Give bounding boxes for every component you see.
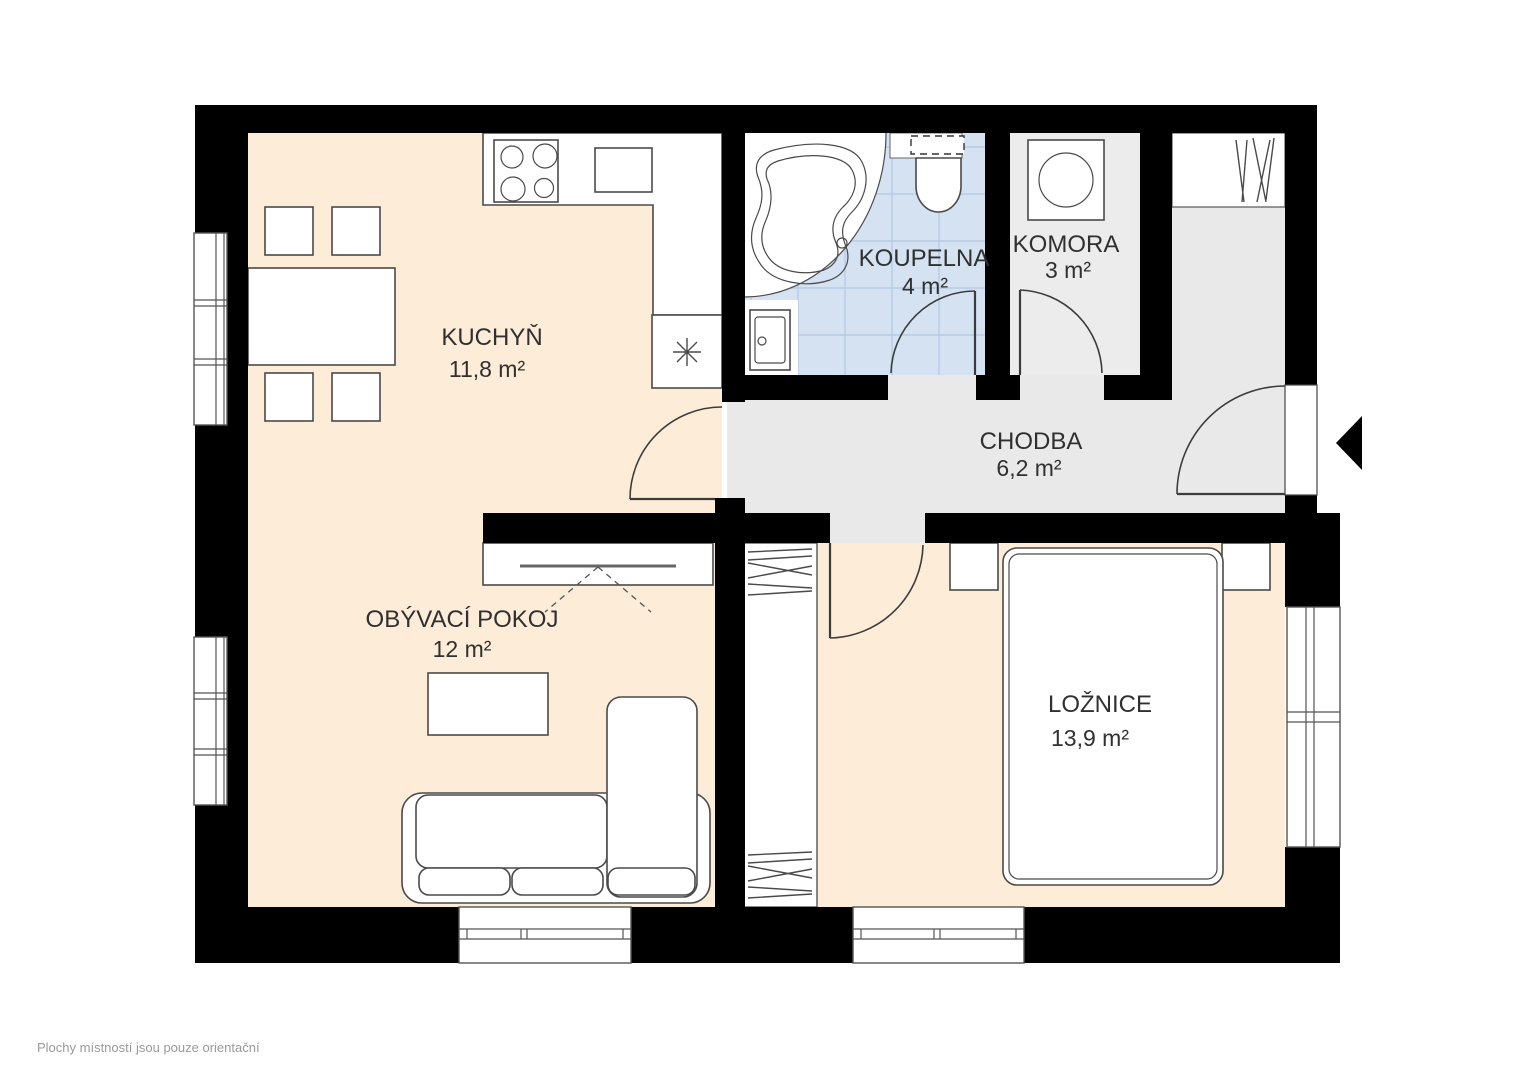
chair (265, 207, 313, 255)
fridge (652, 315, 722, 388)
label-bathroom-area: 4 m² (902, 273, 948, 299)
washing-machine (1028, 140, 1104, 220)
toilet-bowl (916, 158, 961, 212)
label-living-room-area: 12 m² (433, 636, 492, 662)
label-hallway-area: 6,2 m² (996, 455, 1062, 481)
kitchen-sink (595, 148, 652, 192)
window-bedroom-bottom (853, 907, 1024, 963)
coffee-table (428, 673, 548, 735)
stove (494, 140, 558, 202)
chair (332, 207, 380, 255)
label-kitchen: KUCHYŇ (441, 324, 542, 351)
disclaimer-note: Plochy místností jsou pouze orientační (37, 1040, 260, 1055)
chair (265, 373, 313, 421)
nightstand (950, 543, 998, 590)
window-living-left (194, 637, 227, 805)
floor-plan-page: KUCHYŇ 11,8 m² KOUPELNA 4 m² KOMORA 3 m²… (0, 0, 1528, 1080)
entrance-arrow-icon (1336, 416, 1362, 470)
bathroom-sink (750, 310, 790, 370)
sofa-chaise (607, 697, 697, 897)
label-bathroom: KOUPELNA (859, 245, 990, 272)
label-bedroom: LOŽNICE (1048, 691, 1152, 718)
sofa-seat-cushion (512, 868, 603, 895)
label-storage-area: 3 m² (1045, 257, 1091, 283)
fridge-star-icon (673, 338, 701, 366)
sofa-seat-cushion (419, 868, 510, 895)
label-kitchen-area: 11,8 m² (449, 356, 526, 382)
window-kitchen-left (194, 233, 227, 425)
window-living-bottom (459, 907, 631, 963)
label-living-room: OBÝVACÍ POKOJ (366, 606, 559, 633)
chair (332, 373, 380, 421)
label-hallway: CHODBA (980, 428, 1083, 455)
label-storage: KOMORA (1013, 231, 1120, 258)
dining-table (248, 268, 395, 365)
entry-closet (1172, 133, 1285, 207)
sofa-seat-cushion (608, 868, 695, 895)
exterior-wall-bottom (195, 907, 1340, 963)
label-bedroom-area: 13,9 m² (1051, 725, 1129, 751)
wardrobe (743, 543, 817, 907)
window-bedroom-right (1287, 607, 1340, 847)
nightstand (1222, 543, 1270, 590)
floor-plan-drawing: KUCHYŇ 11,8 m² KOUPELNA 4 m² KOMORA 3 m²… (0, 0, 1528, 1080)
sofa-back-cushion (416, 795, 607, 868)
exterior-wall-top (195, 105, 1317, 133)
toilet-cistern (911, 136, 964, 154)
